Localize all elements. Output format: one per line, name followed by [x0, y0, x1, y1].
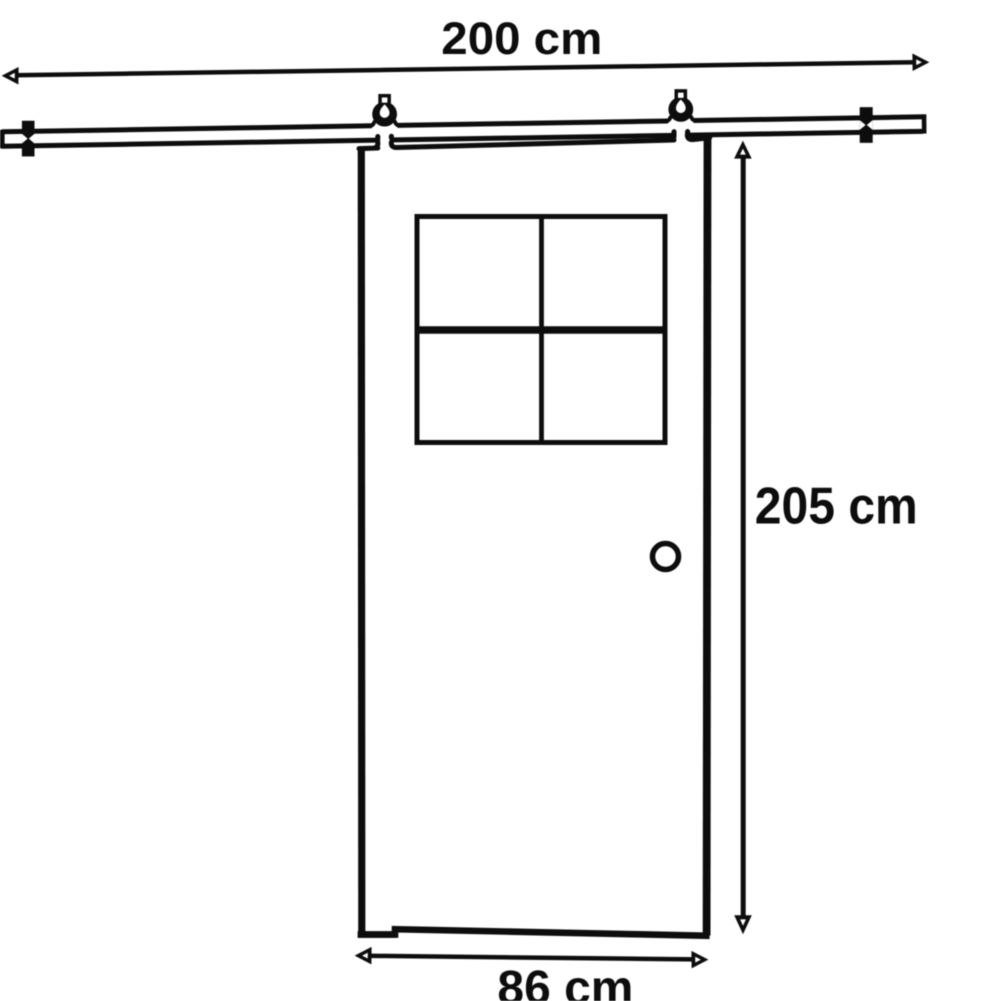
svg-text:200 cm: 200 cm — [441, 13, 602, 64]
svg-text:205 cm: 205 cm — [755, 476, 918, 534]
svg-text:86 cm: 86 cm — [497, 962, 633, 1001]
